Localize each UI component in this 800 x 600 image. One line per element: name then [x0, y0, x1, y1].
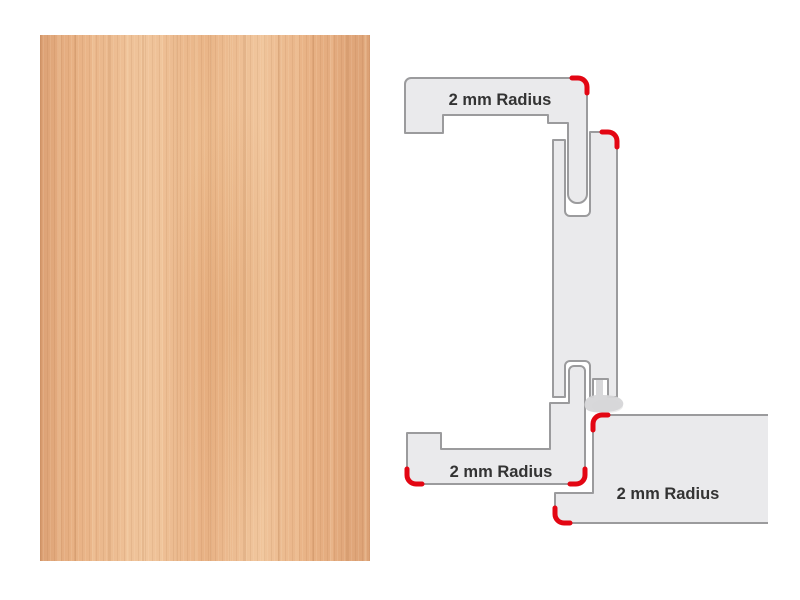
bottom-profile-radius-label: 2 mm Radius [450, 463, 553, 481]
top-profile-radius-label: 2 mm Radius [449, 91, 552, 109]
door-leaf-radius-label: 2 mm Radius [617, 485, 720, 503]
product-image: 2 mm Radius 2 mm Radius 2 mm Radius [0, 0, 800, 600]
frame-profile-diagram: 2 mm Radius 2 mm Radius 2 mm Radius [0, 0, 800, 600]
